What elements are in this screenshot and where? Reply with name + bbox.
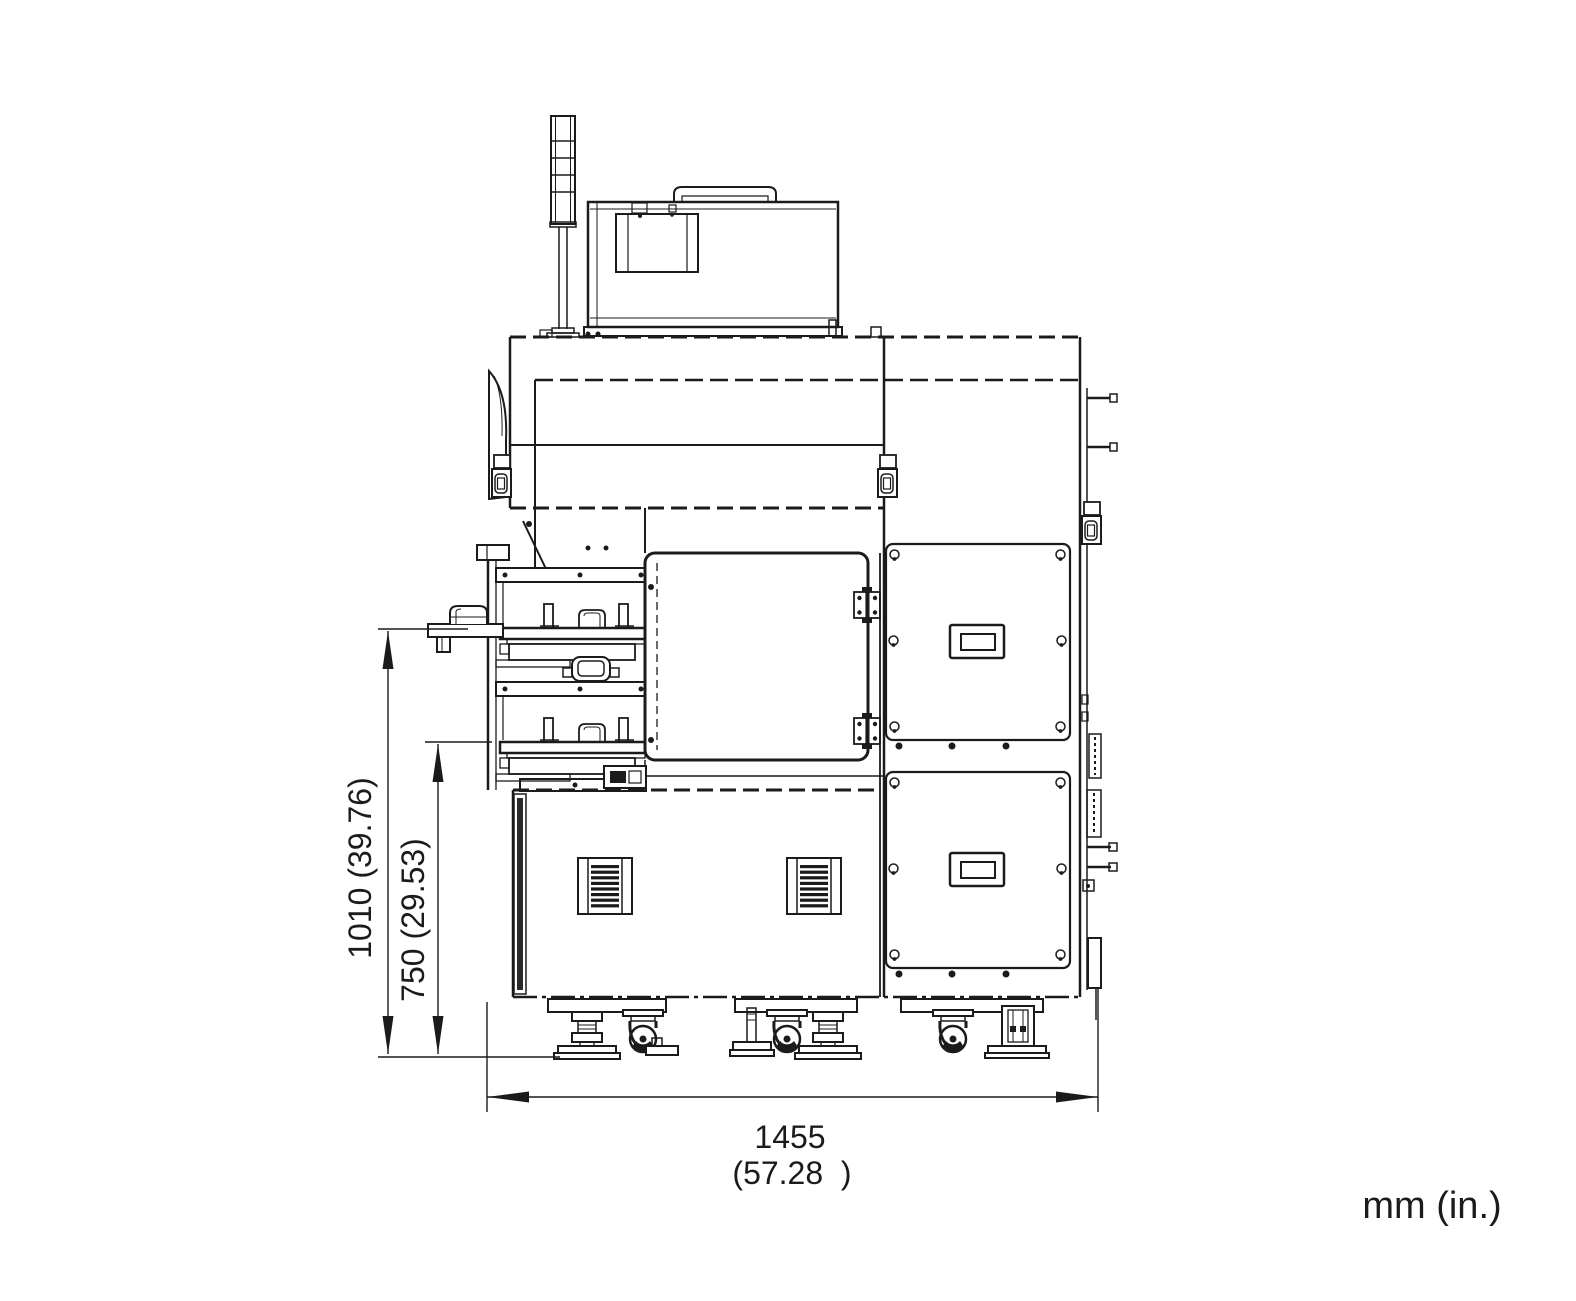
load-port-area [488,560,652,791]
front-door [645,553,868,760]
latch-left [492,455,511,497]
dim-load-port-height-label: 750 (29.53) [395,838,431,1002]
dim-overall-width-mm: 1455 [754,1119,825,1155]
carry-handle [674,187,776,202]
access-panel-upper [886,544,1070,740]
dim-overall-height-label: 1010 (39.76) [342,777,378,958]
units-note: mm (in.) [1362,1185,1501,1227]
leveling-foot-middle-small [733,1042,771,1050]
access-panel-lower [886,772,1070,968]
leveling-foot-middle [795,1012,861,1059]
technical-drawing-page: 1010 (39.76) 750 (29.53) 1455 (57.28 ) m… [0,0,1576,1301]
leveling-jack-right [985,1006,1049,1058]
top-enclosure [584,187,842,336]
right-bay [886,544,1070,978]
latch-right-wall [1082,502,1101,544]
load-port-stage-1 [496,568,652,667]
latch-center [878,455,897,497]
louver-vent-left [578,858,632,914]
dim-overall-width-in: (57.28 ) [732,1155,851,1191]
base-and-feet [548,999,1049,1059]
caster-right [933,1010,973,1053]
machine-front-view [428,116,1117,1059]
leveling-foot-left [554,1012,620,1059]
machine-dimension-drawing: 1010 (39.76) 750 (29.53) 1455 (57.28 ) m… [0,0,1576,1301]
signal-tower [547,116,579,337]
louver-vent-right [787,858,841,914]
